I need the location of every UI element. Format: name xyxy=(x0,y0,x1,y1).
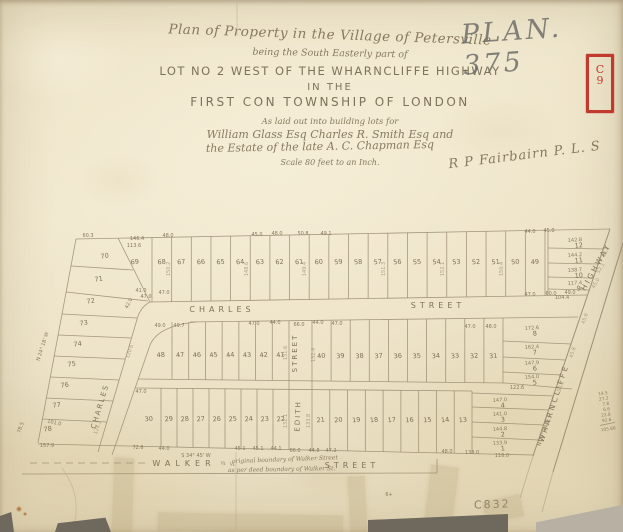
plan-sheet: Plan of Property in the Village of Peter… xyxy=(0,0,623,532)
measurement-label: 48.0 xyxy=(441,449,452,455)
measurement-label: 49.0 xyxy=(154,323,165,329)
map-line xyxy=(542,472,553,512)
lot-number: 11 xyxy=(574,256,583,265)
lot-number: 45 xyxy=(209,351,218,360)
measurement-label: 132.4 xyxy=(311,348,317,362)
lot-number: 74 xyxy=(73,339,82,348)
lot-number: 47 xyxy=(176,351,185,360)
lot-number: 78 xyxy=(43,424,52,433)
lot-number: 72 xyxy=(86,296,95,305)
measurement-label: 45.0 xyxy=(543,228,554,234)
lot-number: 13 xyxy=(458,416,467,425)
lot-number: 68 xyxy=(157,258,166,267)
measurement-label: 151.3 xyxy=(381,262,387,276)
measurement-label: 157.9 xyxy=(40,443,54,449)
lot-number: 18 xyxy=(369,416,378,425)
lot-number: 46 xyxy=(192,351,201,360)
boundary-note: as per deed boundary of Walker St. xyxy=(228,465,336,474)
lot-number: 38 xyxy=(355,352,364,361)
lot-number: 12 xyxy=(574,241,583,250)
map-line xyxy=(54,356,125,359)
lot-number: 56 xyxy=(393,258,402,267)
measurement-label: 49.7 xyxy=(173,323,184,329)
measurement-label: 138.0 xyxy=(465,450,479,456)
measurement-label: 42.0 xyxy=(124,297,134,310)
sum-column: 14.527.27.86.622.892.6105.66 xyxy=(595,390,616,434)
measurement-label: 47.0 xyxy=(524,292,535,298)
lot-number: 60 xyxy=(314,258,323,267)
measurement-label: 120.6 xyxy=(125,344,135,359)
measurement-label: 150.2 xyxy=(166,262,172,276)
measurement-label: 44.0 xyxy=(269,320,280,326)
lot-number: 75 xyxy=(67,359,76,368)
boundary-note: original boundary of Walker Street xyxy=(232,454,339,465)
map-line xyxy=(520,456,533,498)
lot-number: 25 xyxy=(228,415,237,424)
map-line xyxy=(58,335,131,338)
measurement-label: 47.0 xyxy=(135,389,146,395)
lot-number: 2 xyxy=(500,430,505,438)
lot-number: 58 xyxy=(354,258,363,267)
measurement-label: 66.0 xyxy=(289,448,300,454)
measurement-label: 146.4 xyxy=(130,236,144,242)
measurement-label: 150.4 xyxy=(499,262,505,276)
lot-number: 36 xyxy=(393,352,402,361)
lot-number: 14 xyxy=(441,416,450,425)
measurement-label: 132.1 xyxy=(283,414,289,428)
map-line xyxy=(135,388,472,391)
lot-number: 24 xyxy=(244,415,253,424)
lot-number: 42 xyxy=(259,351,268,360)
lot-number: 28 xyxy=(180,415,189,424)
street-label-walker_west: WALKER xyxy=(152,459,215,468)
measurement-label: 133.8 xyxy=(306,414,312,428)
measurement-label: 116.0 xyxy=(495,453,509,459)
tape-mark xyxy=(112,458,135,532)
lot-number: 15 xyxy=(423,416,432,425)
map-line xyxy=(50,377,119,380)
map-line xyxy=(138,379,505,383)
lot-number: 31 xyxy=(489,352,498,361)
street-label-edith_lower: EDITH xyxy=(293,400,302,432)
map-line xyxy=(62,314,137,318)
lot-number: 70 xyxy=(100,251,109,260)
lot-number: 67 xyxy=(177,258,186,267)
lot-number: 6 xyxy=(532,364,537,372)
lot-number: 26 xyxy=(212,415,221,424)
lot-number: 39 xyxy=(336,352,345,361)
lot-number: 53 xyxy=(452,258,461,267)
ink-stain xyxy=(23,512,27,516)
measurement-label: 122.6 xyxy=(510,385,524,391)
measurement-label: N 24° 18' W xyxy=(36,331,51,361)
measurement-label: 148.6 xyxy=(244,262,250,276)
tape-mark xyxy=(158,512,343,532)
lot-number: 76 xyxy=(60,380,69,389)
measurement-label: 44.1 xyxy=(270,446,281,452)
lot-number: 8 xyxy=(532,329,537,337)
measurement-label: 47.0 xyxy=(331,321,342,327)
lot-number: 63 xyxy=(255,258,264,267)
lot-number: 43 xyxy=(242,351,251,360)
lot-number: 23 xyxy=(260,415,269,424)
measurement-label: S 34° 45' W xyxy=(181,453,211,459)
lot-number: 33 xyxy=(451,352,460,361)
map-line xyxy=(98,302,150,452)
measurement-label: 6+ xyxy=(385,492,392,498)
lot-number: 65 xyxy=(216,258,225,267)
measurement-label: 44.0 xyxy=(524,229,535,235)
street-label-charles_west: CHARLES xyxy=(189,305,254,314)
lot-number: 17 xyxy=(387,416,396,425)
measurement-label: 149.4 xyxy=(302,262,308,276)
measurement-label: 47.2 xyxy=(325,448,336,454)
lot-number: 27 xyxy=(196,415,205,424)
lot-number: 69 xyxy=(130,258,139,267)
lot-number: 19 xyxy=(352,416,361,425)
measurement-label: 45.1 xyxy=(234,446,245,452)
measurement-label: 49.1 xyxy=(320,231,331,237)
lot-number: 73 xyxy=(79,318,88,327)
lot-number: 44 xyxy=(226,351,235,360)
lot-number: 10 xyxy=(574,271,583,280)
lot-number: 4 xyxy=(500,401,505,409)
measurement-label: 45.6 xyxy=(580,312,589,324)
ink-stain xyxy=(16,506,22,512)
map-line xyxy=(472,422,544,425)
street-label-edith_upper: STREET xyxy=(291,334,299,373)
measurement-label: 47.0 xyxy=(248,321,259,327)
measurement-label: 152.1 xyxy=(440,262,446,276)
measurement-label: 48.0 xyxy=(162,233,173,239)
measurement-label: 44.0 xyxy=(312,320,323,326)
lot-number: 16 xyxy=(405,416,414,425)
measurement-label: 47.0 xyxy=(140,294,151,300)
lot-number: 40 xyxy=(317,352,326,361)
measurement-label: 45.1 xyxy=(252,446,263,452)
tape-mark xyxy=(348,476,368,532)
lot-number: 55 xyxy=(413,258,422,267)
lot-number: 48 xyxy=(156,351,165,360)
measurement-label: 66.0 xyxy=(293,322,304,328)
measurement-label: 48.0 xyxy=(485,324,496,330)
map-line xyxy=(71,266,133,270)
lot-number: 20 xyxy=(334,416,343,425)
lot-number: 49 xyxy=(530,258,539,267)
measurement-label: 72.6 xyxy=(132,445,143,451)
lot-number: 66 xyxy=(196,258,205,267)
lot-number: 71 xyxy=(94,274,103,283)
measurement-label: 131.6 xyxy=(283,346,289,360)
lot-number: 21 xyxy=(316,416,325,425)
map-line xyxy=(472,407,549,410)
lot-number: 32 xyxy=(470,352,479,361)
measurement-label: 44.0 xyxy=(158,446,169,452)
measurement-label: 44.8 xyxy=(308,448,319,454)
measurement-label: 104.4 xyxy=(555,295,569,301)
lot-number: 50 xyxy=(511,258,520,267)
survey-map: 6968676665646362616059585756555453525150… xyxy=(0,0,623,532)
lot-number: 59 xyxy=(334,258,343,267)
measurement-label: 48.0 xyxy=(271,231,282,237)
lot-number: 30 xyxy=(144,415,153,424)
map-line xyxy=(472,393,554,396)
measurement-label: ⅔ xyxy=(221,461,226,467)
lot-number: 62 xyxy=(275,258,284,267)
measurement-label: 113.6 xyxy=(127,243,141,249)
street-label-charles_east: STREET xyxy=(411,301,466,310)
lot-number: 35 xyxy=(412,352,421,361)
measurement-label: 60.3 xyxy=(82,233,93,239)
lot-number: 29 xyxy=(164,415,173,424)
lot-number: 1 xyxy=(500,444,505,452)
measurement-label: 47.0 xyxy=(158,290,169,296)
lot-number: 37 xyxy=(374,352,383,361)
lot-number: 5 xyxy=(532,378,537,386)
lot-number: 77 xyxy=(52,400,61,409)
sum-total: 105.66 xyxy=(600,425,616,433)
lot-number: 7 xyxy=(532,348,537,356)
measurement-label: 45.0 xyxy=(251,232,262,238)
measurement-label: 50.8 xyxy=(297,231,308,237)
measurement-label: 78.5 xyxy=(16,421,25,434)
lot-number: 3 xyxy=(500,415,505,423)
measurement-label: 47.0 xyxy=(464,324,475,330)
lot-number: 52 xyxy=(471,258,480,267)
lot-number: 34 xyxy=(431,352,440,361)
